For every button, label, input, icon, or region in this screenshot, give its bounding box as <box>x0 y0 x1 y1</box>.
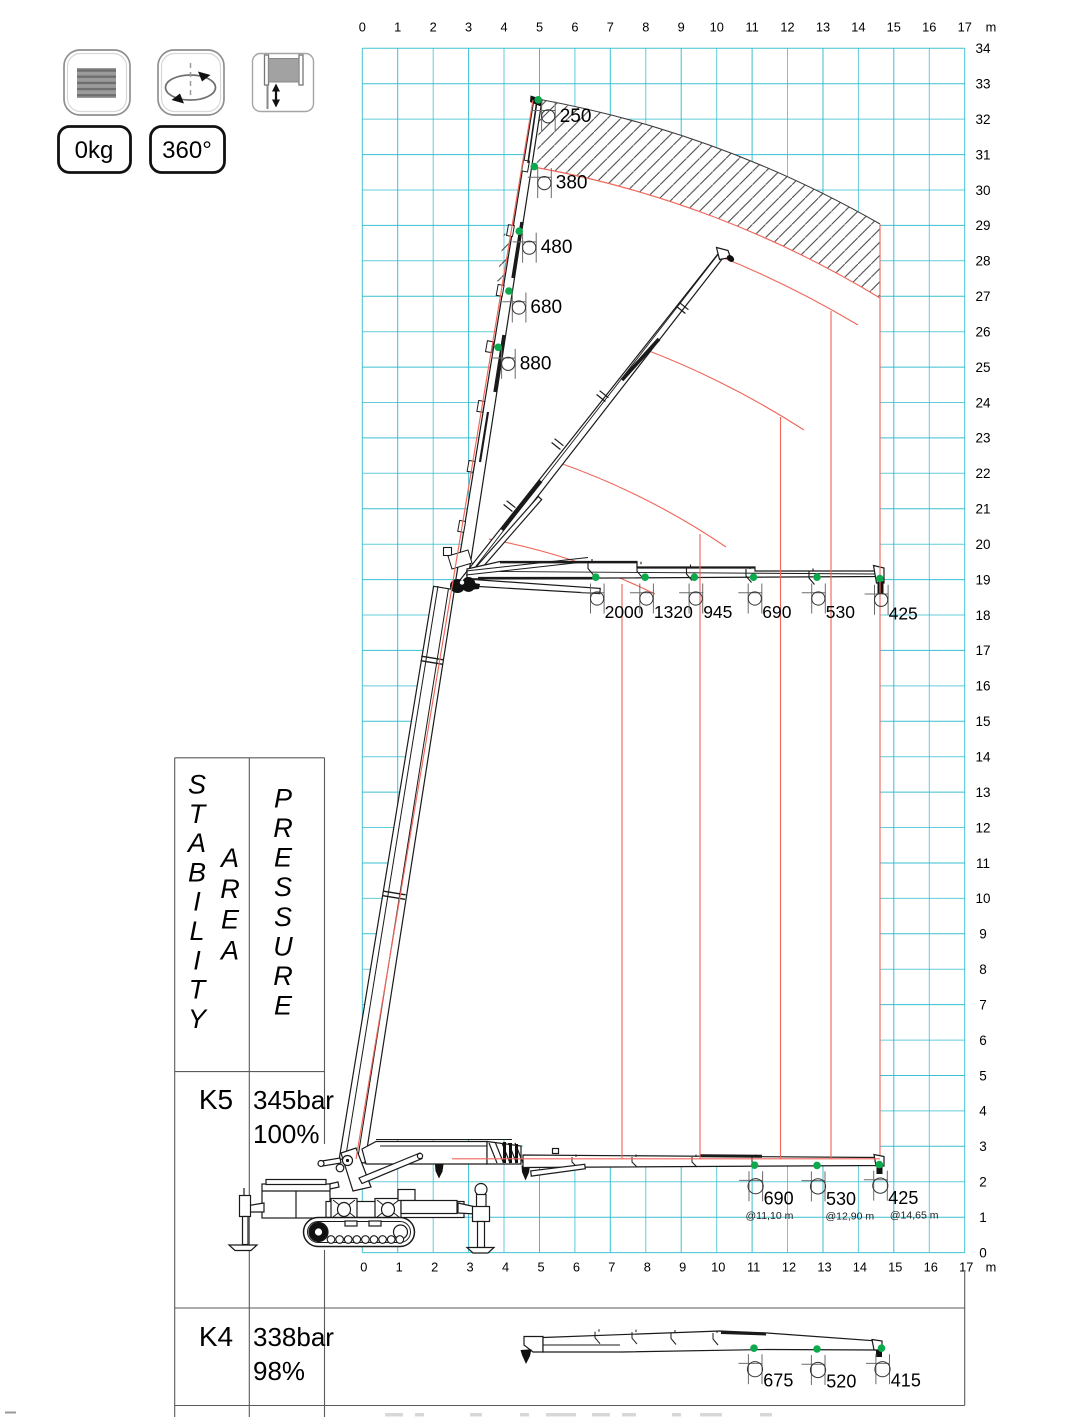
svg-text:13: 13 <box>975 785 990 800</box>
svg-text:4: 4 <box>500 20 507 35</box>
svg-text:S: S <box>188 770 206 800</box>
svg-text:2: 2 <box>979 1175 987 1190</box>
svg-text:26: 26 <box>975 325 990 340</box>
svg-text:A: A <box>219 843 239 873</box>
svg-text:945: 945 <box>703 602 732 622</box>
svg-text:1320: 1320 <box>654 602 693 622</box>
svg-text:1: 1 <box>394 20 401 35</box>
svg-text:28: 28 <box>975 254 990 269</box>
svg-text:P: P <box>274 783 292 813</box>
svg-text:R: R <box>273 961 293 991</box>
svg-text:9: 9 <box>679 1260 686 1275</box>
svg-text:R: R <box>273 813 293 843</box>
svg-text:338bar: 338bar <box>253 1322 334 1352</box>
svg-text:@12,90 m: @12,90 m <box>826 1210 875 1222</box>
svg-text:0kg: 0kg <box>75 137 114 164</box>
svg-text:32: 32 <box>975 112 990 127</box>
svg-text:T: T <box>189 975 208 1005</box>
svg-text:16: 16 <box>922 20 936 35</box>
svg-text:14: 14 <box>975 750 991 765</box>
svg-text:34: 34 <box>975 41 991 56</box>
svg-text:24: 24 <box>975 395 991 410</box>
svg-text:L: L <box>189 916 204 946</box>
svg-text:17: 17 <box>958 20 972 35</box>
svg-text:3: 3 <box>465 20 472 35</box>
svg-text:10: 10 <box>710 20 724 35</box>
svg-text:K4: K4 <box>199 1321 233 1352</box>
svg-text:m: m <box>986 1260 997 1275</box>
svg-text:7: 7 <box>607 20 614 35</box>
svg-text:7: 7 <box>979 997 987 1012</box>
svg-text:16: 16 <box>924 1260 938 1275</box>
svg-text:5: 5 <box>979 1068 987 1083</box>
svg-text:13: 13 <box>816 20 830 35</box>
svg-text:8: 8 <box>644 1260 651 1275</box>
svg-text:380: 380 <box>556 173 588 194</box>
svg-text:530: 530 <box>826 1189 856 1209</box>
svg-text:7: 7 <box>608 1260 615 1275</box>
svg-text:18: 18 <box>975 608 990 623</box>
svg-text:25: 25 <box>975 360 990 375</box>
svg-text:31: 31 <box>975 147 990 162</box>
svg-text:11: 11 <box>976 856 990 871</box>
svg-text:@14,65 m: @14,65 m <box>890 1210 939 1222</box>
svg-text:27: 27 <box>975 289 990 304</box>
svg-text:3: 3 <box>979 1139 987 1154</box>
svg-text:10: 10 <box>711 1260 725 1275</box>
svg-text:E: E <box>274 843 293 873</box>
svg-text:13: 13 <box>817 1260 831 1275</box>
svg-text:17: 17 <box>959 1260 973 1275</box>
svg-text:680: 680 <box>530 297 562 318</box>
svg-text:K5: K5 <box>199 1084 233 1115</box>
svg-text:0: 0 <box>979 1245 987 1260</box>
svg-text:425: 425 <box>888 1188 918 1208</box>
svg-text:33: 33 <box>975 77 990 92</box>
svg-text:6: 6 <box>573 1260 580 1275</box>
svg-text:1: 1 <box>979 1210 987 1225</box>
svg-text:B: B <box>188 857 206 887</box>
svg-text:530: 530 <box>826 602 855 622</box>
svg-text:3: 3 <box>467 1260 474 1275</box>
svg-text:E: E <box>274 991 293 1021</box>
svg-text:250: 250 <box>560 106 592 127</box>
svg-text:30: 30 <box>975 183 990 198</box>
svg-text:Y: Y <box>188 1004 208 1034</box>
svg-text:2: 2 <box>430 20 437 35</box>
svg-text:5: 5 <box>537 1260 544 1275</box>
svg-text:9: 9 <box>678 20 685 35</box>
svg-text:19: 19 <box>975 572 990 587</box>
svg-text:690: 690 <box>764 1189 794 1209</box>
svg-text:9: 9 <box>979 927 987 942</box>
svg-text:2: 2 <box>431 1260 438 1275</box>
svg-text:m: m <box>986 20 997 35</box>
svg-text:0: 0 <box>359 20 366 35</box>
svg-text:6: 6 <box>979 1033 987 1048</box>
svg-text:10: 10 <box>975 891 990 906</box>
svg-text:@11,10 m: @11,10 m <box>746 1210 794 1222</box>
svg-text:100%: 100% <box>253 1119 320 1149</box>
svg-text:4: 4 <box>502 1260 509 1275</box>
svg-text:22: 22 <box>975 466 990 481</box>
svg-text:98%: 98% <box>253 1356 305 1386</box>
svg-text:4: 4 <box>979 1104 987 1119</box>
svg-text:345bar: 345bar <box>253 1085 334 1115</box>
svg-text:15: 15 <box>975 714 990 729</box>
svg-text:425: 425 <box>889 604 918 624</box>
svg-text:A: A <box>219 935 239 965</box>
svg-text:S: S <box>274 902 292 932</box>
svg-text:E: E <box>221 905 240 935</box>
svg-text:675: 675 <box>763 1371 793 1391</box>
svg-text:415: 415 <box>891 1371 921 1391</box>
svg-text:880: 880 <box>520 353 552 374</box>
svg-text:I: I <box>193 945 201 975</box>
svg-text:0: 0 <box>360 1260 367 1275</box>
svg-text:11: 11 <box>745 20 758 35</box>
svg-text:11: 11 <box>747 1260 760 1275</box>
svg-text:5: 5 <box>536 20 543 35</box>
svg-text:21: 21 <box>975 502 990 517</box>
svg-text:U: U <box>273 931 293 961</box>
svg-text:6: 6 <box>571 20 578 35</box>
svg-text:2000: 2000 <box>605 602 644 622</box>
svg-text:520: 520 <box>826 1372 856 1392</box>
svg-text:I: I <box>193 887 201 917</box>
svg-text:14: 14 <box>851 20 865 35</box>
svg-text:29: 29 <box>975 218 990 233</box>
svg-text:1: 1 <box>396 1260 403 1275</box>
svg-text:T: T <box>189 799 208 829</box>
svg-text:A: A <box>186 828 206 858</box>
svg-text:12: 12 <box>975 820 990 835</box>
svg-text:R: R <box>220 874 240 904</box>
svg-text:20: 20 <box>975 537 990 552</box>
svg-text:16: 16 <box>975 679 990 694</box>
svg-text:480: 480 <box>541 237 573 258</box>
svg-text:12: 12 <box>780 20 794 35</box>
svg-text:15: 15 <box>888 1260 902 1275</box>
svg-text:15: 15 <box>887 20 901 35</box>
svg-text:23: 23 <box>975 431 990 446</box>
svg-text:8: 8 <box>979 962 987 977</box>
svg-text:S: S <box>274 872 292 902</box>
svg-text:360°: 360° <box>162 137 212 164</box>
svg-text:690: 690 <box>762 602 791 622</box>
svg-text:8: 8 <box>642 20 649 35</box>
svg-text:14: 14 <box>853 1260 867 1275</box>
svg-text:17: 17 <box>975 643 990 658</box>
svg-text:12: 12 <box>782 1260 796 1275</box>
